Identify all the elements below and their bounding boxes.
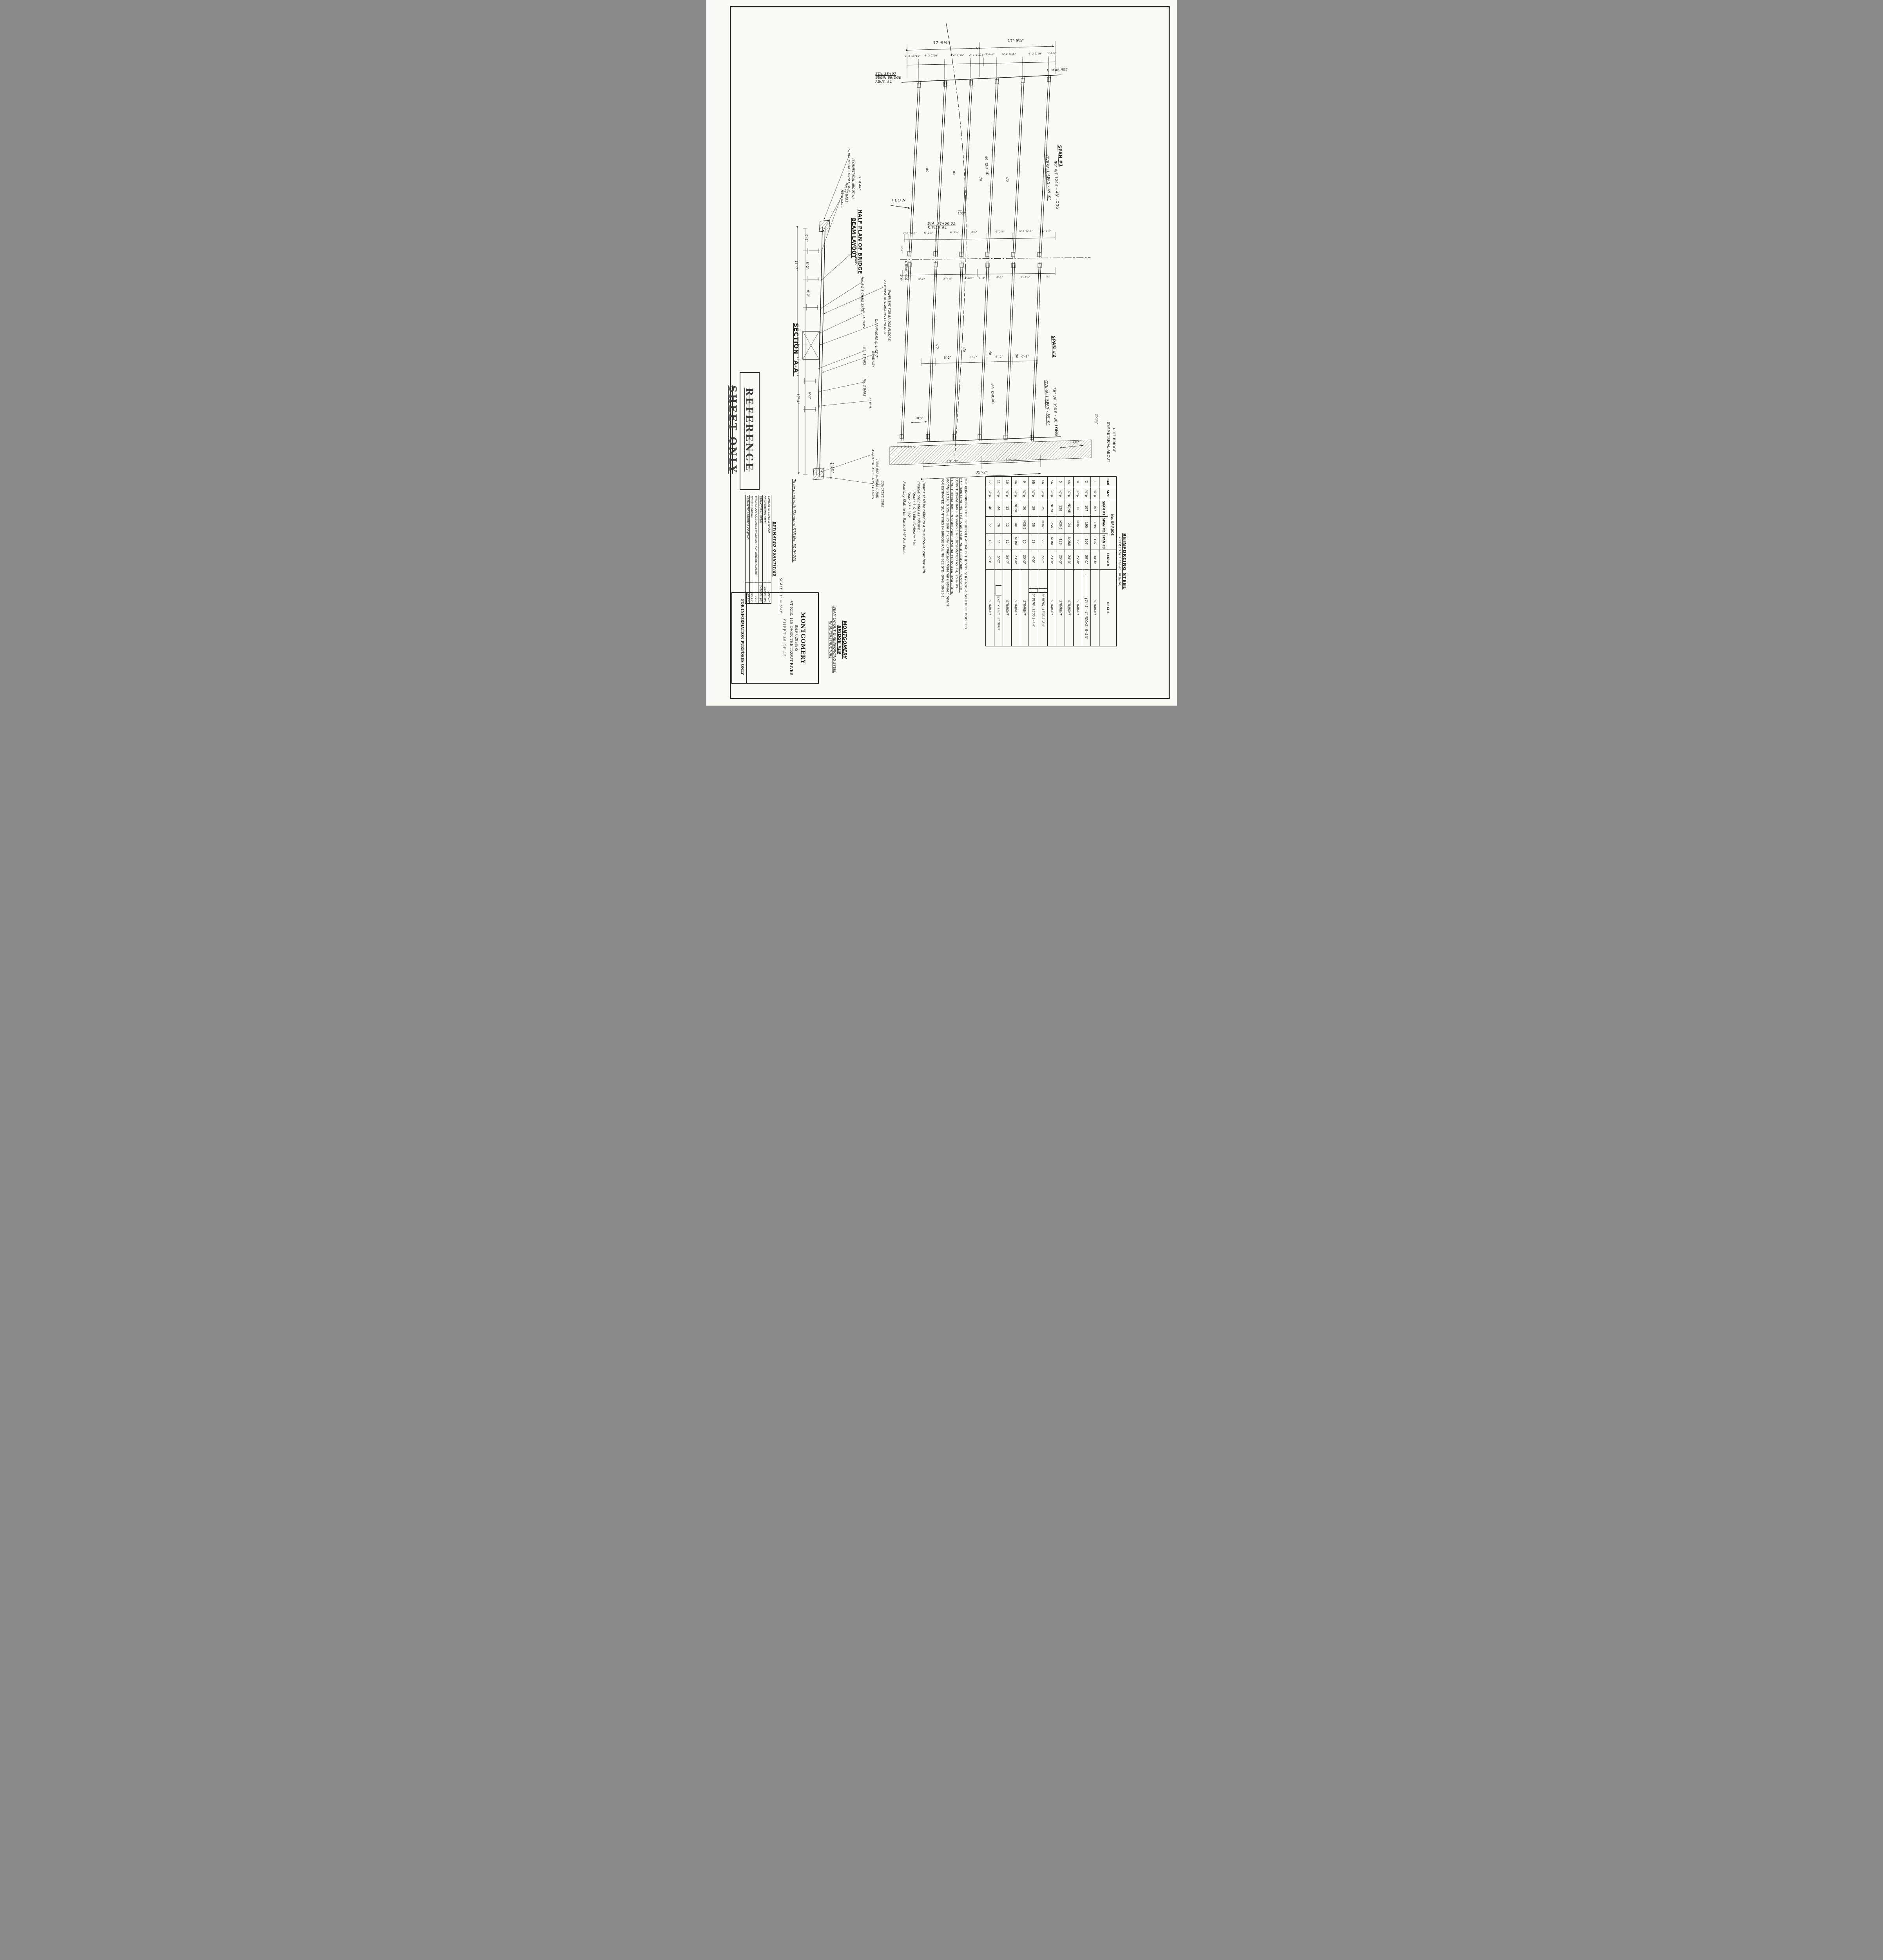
stirrup-bar-sketch xyxy=(996,585,1001,595)
dim-sub-5: 3'-6⅛" xyxy=(985,53,995,56)
dim-top-1: 17'-9⅜" xyxy=(933,41,950,45)
sta-begin-station: STA. 38+07 xyxy=(876,72,902,76)
rebar-header-row: BAR SIZE No. OF RODS LENGTH DETAIL xyxy=(1108,477,1116,646)
cell: 29 xyxy=(1029,500,1038,517)
table-row: STRUCTURAL STEEL247090 LBS. xyxy=(758,495,762,604)
cell: 24'-3" xyxy=(1065,550,1073,570)
ditto-s2-2: do xyxy=(962,347,966,352)
col-size: SIZE xyxy=(1099,487,1116,500)
cell: 58 xyxy=(1029,517,1038,534)
cell: NONE xyxy=(1047,500,1056,517)
dim-pier-below-8: ⅞" xyxy=(1046,275,1050,278)
title-block-main: MONTGOMERY BHF 0283(8)S VT RTE. 118 OVER… xyxy=(747,593,818,683)
detail-text: 34'-1" · 4" HOOKS · R=2½" xyxy=(1085,600,1088,640)
cell: 128 xyxy=(1056,500,1065,517)
dim-pier-below-2: 6'-2" xyxy=(918,278,925,281)
label-no11-bars: No. 11 BARS xyxy=(854,245,858,265)
label-no2-bars: No. 2 BARS xyxy=(863,379,866,396)
span2-title: SPAN #2 xyxy=(1051,336,1057,358)
dim-sub-8: 1'-9⅜" xyxy=(1047,52,1057,55)
table-row: BRIDGE RAILING379 L.F. xyxy=(749,495,754,604)
cell: NONE xyxy=(1011,500,1020,517)
cell: 195 xyxy=(1090,517,1099,534)
sta-begin-line2: BEGIN BRIDGE xyxy=(876,76,902,80)
detail-cell: 34'-1" · 4" HOOKS · R=2½" xyxy=(1082,570,1090,646)
cell: 256 xyxy=(1047,517,1056,534)
title-block-inner: MONTGOMERY BHF 0283(8)S VT RTE. 118 OVER… xyxy=(782,593,817,683)
dim-bottom-right-b: 6'-9¾" xyxy=(1068,441,1079,444)
table-row: 9A½"φNONE40NONE23'-8"STRAIGHT xyxy=(1011,477,1020,646)
label-symmetrical-cl: (SYMMETRICAL ABOUT ℄) xyxy=(851,158,855,199)
label-3in-min: 3" MIN. xyxy=(868,397,872,409)
quantities-box: ESTIMATED QUANTITIES CONCRETE CLASS B (M… xyxy=(734,495,776,604)
dim-pier-small-b: 1'-0" xyxy=(900,274,903,281)
label-chair-bars: No. 4 & 5 CHAIR BARS xyxy=(860,277,864,312)
label-diaphragms: DIAPHRAGMS @ ℄ 42'-7" xyxy=(874,319,878,359)
detail-cell: STRAIGHT xyxy=(1047,570,1056,646)
title-sheet-no: SHEET 45 OF 45 xyxy=(782,593,786,683)
ditto-s1-4: do xyxy=(1005,177,1009,182)
detail-cell: STRAIGHT xyxy=(1011,570,1020,646)
detail-text: 8" BEND · LEGS 1'-7¼" xyxy=(1032,594,1035,628)
dim-pier-below-7: 1'-3⅝" xyxy=(1021,276,1030,279)
cell: 29 xyxy=(1029,533,1038,550)
rebar-table: BAR SIZE No. OF RODS LENGTH DETAIL SPAN … xyxy=(985,476,1117,646)
dim-bottom-10half: 10½" xyxy=(915,416,923,420)
cell: 10 xyxy=(1003,477,1011,487)
cell: 2 xyxy=(1082,477,1090,487)
table-row: 2⅝"φ10719510736'-1"34'-1" · 4" HOOKS · R… xyxy=(1082,477,1090,646)
cell: NONE xyxy=(1047,533,1056,550)
cell: 40 xyxy=(1011,517,1020,534)
dim-pier-small-a: 1'-0" xyxy=(900,246,903,253)
cell: 44 xyxy=(994,500,1003,517)
cell: ½"φ xyxy=(985,487,994,500)
detail-cell: STRAIGHT xyxy=(1090,570,1099,646)
cell: ½"φ xyxy=(1029,487,1038,500)
dim-sub-1: 2'-8 13/16" xyxy=(905,54,921,58)
camber-5: Roadway Slab to be Banked ½" Per Foot. xyxy=(902,481,906,633)
qty-item: ASPHALTIC ASBESTOS COATING xyxy=(745,495,749,583)
dim-span2-mid-1: 6'-2" xyxy=(944,356,951,359)
dim-top-2: 17'-9⅝" xyxy=(1008,39,1024,43)
cell: NONE xyxy=(1065,533,1073,550)
cell: 23'-8" xyxy=(1047,550,1056,570)
detail-text: 8" BEND · LEGS 2'-2½" xyxy=(1041,594,1045,628)
cell: 24 xyxy=(1065,517,1073,534)
section-dim-62-4: 6'-2" xyxy=(808,392,811,399)
dim-sub-6: 6'-2 7/16" xyxy=(1002,53,1016,56)
dim-pier-above-6: 6'-2 7/16" xyxy=(1019,230,1033,233)
table-row: CONCRETE CLASS B (MOD)198 C.Y. xyxy=(767,495,771,604)
dim-pier-below-6: 6'-2" xyxy=(996,276,1003,279)
dim-bottom-17b: 17'-7" xyxy=(1005,459,1017,463)
half-plan-title-1: HALF PLAN OF BRIDGE xyxy=(857,209,863,274)
cell: 12 xyxy=(1073,500,1082,517)
table-row: 4A¾"φNONE24NONE24'-3"STRAIGHT xyxy=(1065,477,1073,646)
title-block: FOR INFORMATION PURPOSES ONLY MONTGOMERY… xyxy=(731,592,819,684)
span1-chord: 49' CHORD xyxy=(984,156,989,176)
dim-span2-mid-4: 6'-2" xyxy=(1021,355,1029,358)
camber-4: Span 2 " " 3¾" xyxy=(907,481,911,633)
detail-cell: STRAIGHT xyxy=(1020,570,1029,646)
sta-pier-station: STA. 38+56.01 xyxy=(928,222,956,226)
cell: 5 xyxy=(1056,477,1065,487)
qty-item: BRIDGE RAILING xyxy=(749,495,754,583)
cell: 34'-7" xyxy=(1003,550,1011,570)
cell: ⅝"φ xyxy=(1082,487,1090,500)
cell: ½"φ xyxy=(1047,487,1056,500)
cell: ½"φ xyxy=(1038,487,1047,500)
col-bar: BAR xyxy=(1099,477,1116,487)
cell: 25'-3" xyxy=(1020,550,1029,570)
dim-pier-above-7: 1'-7⅞" xyxy=(1042,229,1052,232)
label-pavement-2: PAVEMENT FOR BRIDGE FLOORS xyxy=(887,290,891,341)
cell: 29 xyxy=(1038,533,1047,550)
detail-cell: STRAIGHT xyxy=(1065,570,1073,646)
section-dim-62-1: 6'-2" xyxy=(805,234,808,242)
hand-title-3: BEAM LAYOUT & REINFORCING STEEL xyxy=(832,596,836,684)
note-6: FOR ESTIMATED QUANTITIES IN BRIDGE RAILI… xyxy=(941,478,944,639)
hand-title-inner: MONTGOMERY BRIDGE #19 BEAM LAYOUT & REIN… xyxy=(828,596,847,684)
ditto-s2-1: do xyxy=(935,344,940,349)
section-dim-17-7: 17'-7" xyxy=(794,260,798,271)
hand-title-box: MONTGOMERY BRIDGE #19 BEAM LAYOUT & REIN… xyxy=(824,596,847,684)
cell: ⅝"φ xyxy=(1090,487,1099,500)
camber-notes: Beams shall be rolled to a true circular… xyxy=(896,481,925,633)
rebar-title: REINFORCING STEEL xyxy=(1122,476,1127,646)
dim-sub-4: 2'-7 11/16" xyxy=(969,53,985,56)
cell: 1 xyxy=(1090,477,1099,487)
cell: ½"φ xyxy=(1020,487,1029,500)
rebar-table-box: REINFORCING STEEL REFER TO STD. S1B No. … xyxy=(962,476,1127,646)
rebar-subtitle: REFER TO STD. S1B No. 30 (H-20) xyxy=(1118,476,1121,646)
ditto-s1-2: do xyxy=(952,171,956,176)
col-span2: SPAN #2 xyxy=(1099,517,1108,534)
dim-pier-below-5: 6'-2" xyxy=(979,276,985,279)
dim-bottom-right-a: 2'-1⅛" xyxy=(1095,414,1098,425)
cell: ¾"φ xyxy=(1065,487,1073,500)
dim-sub-2: 6'-2 7/16" xyxy=(925,54,938,57)
cell: 6A xyxy=(1038,477,1047,487)
detail-cell: STRAIGHT xyxy=(1003,570,1011,646)
table-row: 11½"φ4476445'-2"2'-2" × 1'-3" · 3" HOOK xyxy=(994,477,1003,646)
rebar-table-inner: REINFORCING STEEL REFER TO STD. S1B No. … xyxy=(985,476,1127,646)
title-town: MONTGOMERY xyxy=(800,593,806,683)
dim-pier-above-3: 6'-2⅞" xyxy=(950,231,960,234)
detail-cell: STRAIGHT xyxy=(985,570,994,646)
ditto-s2-3: do xyxy=(988,350,992,355)
section-dim-62-2: 6'-2" xyxy=(805,262,809,269)
table-row: 5A½"φNONE256NONE23'-8"STRAIGHT xyxy=(1047,477,1056,646)
table-row: 10⅜"φ12121234'-7"STRAIGHT xyxy=(1003,477,1011,646)
cell: 107 xyxy=(1090,533,1099,550)
cell: 12 xyxy=(1003,533,1011,550)
label-no5a-bars: No. 5A BARS xyxy=(862,308,865,328)
cell: 9A xyxy=(1011,477,1020,487)
quantities-title: ESTIMATED QUANTITIES xyxy=(772,495,776,604)
ditto-s1-3: do xyxy=(978,176,983,181)
span1-title: SPAN #1 xyxy=(1057,145,1063,167)
detail-cell: 8" BEND · LEGS 2'-2½" xyxy=(1038,570,1047,646)
cell: 44 xyxy=(994,533,1003,550)
label-no12-bars: No. 12 BARS xyxy=(845,183,848,202)
cell: NONE xyxy=(1065,500,1073,517)
cell: 11 xyxy=(994,477,1003,487)
cell: 40 xyxy=(985,500,994,517)
cell: 29 xyxy=(1038,500,1047,517)
table-row: 12½"φ4072402'-3"STRAIGHT xyxy=(985,477,994,646)
usage-note: To be used with Standard S1B No. 30 (H-2… xyxy=(792,479,796,572)
span2-chord: 89' CHORD xyxy=(990,384,995,404)
reference-stamp-text: REFERENCE SHEET ONLY xyxy=(724,373,757,486)
cell: 40 xyxy=(985,533,994,550)
sta-begin-block: STA. 38+07 BEGIN BRIDGE ABUT. #1 xyxy=(876,72,902,84)
hand-title-4: IN SUPERSTRUCTURE xyxy=(828,596,832,684)
cell: 12 xyxy=(1073,533,1082,550)
table-row: 5½"φ128NONE12825'-3"STRAIGHT xyxy=(1056,477,1065,646)
dim-pier-above-4: 2⅞" xyxy=(971,230,977,234)
col-detail: DETAIL xyxy=(1099,570,1116,646)
drawing-sheet: REFERENCE SHEET ONLY 17'-9⅜" 17'-9⅝" 2'-… xyxy=(706,0,1177,706)
cell: 12 xyxy=(1003,500,1011,517)
table-row: 9½"φ20NONE2025'-3"STRAIGHT xyxy=(1020,477,1029,646)
dim-pier-above-5: 6'-2⅞" xyxy=(996,230,1005,233)
ditto-s2-4: do xyxy=(1014,354,1019,358)
detail-text: 2'-2" × 1'-3" · 3" HOOK xyxy=(997,597,1000,631)
symmetry-label-2: ℄ OF BRIDGE xyxy=(1112,428,1116,452)
cell: 4'-5" xyxy=(1029,550,1038,570)
hand-title-2: BRIDGE #19 xyxy=(837,596,842,684)
hairpin-bar-sketch xyxy=(1038,588,1047,593)
skew-angle-label: 102° xyxy=(958,212,965,215)
dim-pier-above-2: 6'-2⅞" xyxy=(924,231,934,234)
cell: 9 xyxy=(1020,477,1029,487)
dim-bottom-1-6: 1'-6 7/16" xyxy=(901,445,916,449)
cell: NONE xyxy=(1073,517,1082,534)
hooked-bar-sketch xyxy=(1085,576,1087,599)
hairpin-bar-sketch xyxy=(1029,588,1038,593)
sta-pier-line2: ℄ PIER #1 xyxy=(928,226,956,230)
sta-begin-line3: ABUT. #1 xyxy=(876,80,902,84)
col-rods: No. OF RODS xyxy=(1108,500,1116,550)
ditto-s1-1: do xyxy=(925,168,929,172)
detail-cell: 2'-2" × 1'-3" · 3" HOOK xyxy=(994,570,1003,646)
cell: 72 xyxy=(985,517,994,534)
label-item407-curb: ITEM 407 (UNDER CURB) xyxy=(875,459,879,499)
cell: 36'-1" xyxy=(1082,550,1090,570)
cell: 20 xyxy=(1020,500,1029,517)
table-row: 6A½"φ29NONE295'-7"8" BEND · LEGS 2'-2½" xyxy=(1038,477,1047,646)
camber-3: Spans 1 & 3 Mid. Ordinate 1⅛" xyxy=(912,481,916,633)
title-route: VT RTE. 118 OVER THE TROUT RIVER xyxy=(789,593,793,683)
dim-pier-above-1: 2'-6 7/16" xyxy=(903,232,917,235)
cell: 195 xyxy=(1082,517,1090,534)
cell: 34'-6" xyxy=(1090,550,1099,570)
cell: 20 xyxy=(1020,533,1029,550)
cell: 76 xyxy=(994,517,1003,534)
title-project: BHF 0283(8)S xyxy=(794,593,798,683)
col-length: LENGTH xyxy=(1099,550,1116,570)
qty-item: BITUMINOUS CONCRETE PAVEMENT FOR BRIDGE … xyxy=(754,495,758,583)
cell: 107 xyxy=(1082,533,1090,550)
cell: 107 xyxy=(1082,500,1090,517)
note-5: Modify S1B30 (H20)-1 to use 1" Cork Expa… xyxy=(945,478,949,639)
dim-sub-7: 6'-2 7/16" xyxy=(1029,52,1042,55)
general-notes: THE REINFORCING STEEL SCHEDULE ABOVE IS … xyxy=(930,478,967,639)
dim-pier-below-3: 2'-4⅛" xyxy=(943,277,953,280)
camber-notes-inner: Beams shall be rolled to a true circular… xyxy=(901,481,925,633)
label-no9-bars: No. 9 BARS xyxy=(840,190,844,207)
cell: 12 xyxy=(985,477,994,487)
dim-pier-below-4: 4'-0½" xyxy=(965,277,974,280)
flow-label: FLOW xyxy=(892,198,906,203)
cell: NONE xyxy=(1020,517,1029,534)
cell: 5'-7" xyxy=(1038,550,1047,570)
camber-1: Beams shall be rolled to a true circular… xyxy=(922,481,925,633)
table-row: BITUMINOUS CONCRETE PAVEMENT FOR BRIDGE … xyxy=(754,495,758,604)
sta-pier-block: STA. 38+56.01 ℄ PIER #1 xyxy=(928,222,956,230)
label-no1-bars: No. 1 BARS xyxy=(863,347,866,365)
label-item407: ITEM 407 xyxy=(858,176,862,190)
table-row: 4¾"φ12NONE1225'-8"STRAIGHT xyxy=(1073,477,1082,646)
qty-item: STRUCTURAL STEEL xyxy=(758,495,762,583)
hand-title-1: MONTGOMERY xyxy=(842,596,847,684)
cell: 2'-3" xyxy=(985,550,994,570)
detail-cell: STRAIGHT xyxy=(1056,570,1065,646)
section-title: SECTION "A-A" xyxy=(793,323,800,376)
cell: 4A xyxy=(1065,477,1073,487)
cell: 128 xyxy=(1056,533,1065,550)
quantities-inner: ESTIMATED QUANTITIES CONCRETE CLASS B (M… xyxy=(745,495,776,604)
camber-2: middle ordinates as follows : xyxy=(916,481,920,633)
cell: ½"φ xyxy=(994,487,1003,500)
qty-item: CONCRETE CLASS B (MOD) xyxy=(767,495,771,583)
label-pavement-1: 2-COURSE BITUMINOUS CONCRETE xyxy=(883,280,887,335)
symmetry-label-1: SYMMETRICAL ABOUT xyxy=(1106,422,1110,463)
section-dim-17-4: 17'-4" xyxy=(796,394,800,404)
label-asbestos-coating: ASPHALTIC ASBESTOS COATING xyxy=(871,449,874,499)
dim-span2-mid-2: 6'-2" xyxy=(970,356,977,359)
table-row: ASPHALTIC ASBESTOS COATING67 S.Y. xyxy=(745,495,749,604)
col-span3: SPAN #3 xyxy=(1099,533,1108,550)
info-note-cell: FOR INFORMATION PURPOSES ONLY xyxy=(732,593,747,683)
cell: NONE xyxy=(1056,517,1065,534)
cell: ⅜"φ xyxy=(1003,487,1011,500)
info-note: FOR INFORMATION PURPOSES ONLY xyxy=(740,593,744,681)
table-row: 6B½"φ2958294'-5"8" BEND · LEGS 1'-7¼" xyxy=(1029,477,1038,646)
reference-stamp: REFERENCE SHEET ONLY xyxy=(740,372,760,490)
cell: ½"φ xyxy=(1011,487,1020,500)
bearings-label-pier: ℄ BEARINGS xyxy=(904,261,908,280)
usage-note-box: To be used with Standard S1B No. 30 (H-2… xyxy=(786,479,796,572)
qty-item: REINFORCING STEEL xyxy=(762,495,767,583)
detail-cell: 8" BEND · LEGS 1'-7¼" xyxy=(1029,570,1038,646)
cell: 6B xyxy=(1029,477,1038,487)
cell: 5'-2" xyxy=(994,550,1003,570)
section-dim-62-3: 6'-2" xyxy=(806,290,810,298)
cell: 25'-3" xyxy=(1056,550,1065,570)
note-4: LONGITUDINAL BARS IN SPAN 2 ARE DESIGNAT… xyxy=(950,478,954,639)
section-dim-2-9: 2'-9¾" xyxy=(831,463,834,473)
table-row: 1⅝"φ10719510734'-6"STRAIGHT xyxy=(1090,477,1099,646)
dim-bottom-17a: 17'-7" xyxy=(947,460,958,464)
table-row: REINFORCING STEEL44240 LBS. xyxy=(762,495,767,604)
dim-bottom-total: 35'-2" xyxy=(976,470,988,475)
dim-sub-3: 6'-2 7/16" xyxy=(951,54,964,57)
col-span1: SPAN #1 xyxy=(1099,500,1108,517)
cell: 5A xyxy=(1047,477,1056,487)
dim-span2-mid-3: 6'-2" xyxy=(996,355,1003,359)
cell: 12 xyxy=(1003,517,1011,534)
cell: 4 xyxy=(1073,477,1082,487)
cell: NONE xyxy=(1011,533,1020,550)
note-3: LONGITUDINAL BARS IN SPANS 1 & 3 DESIGNA… xyxy=(955,478,958,639)
cell: ½"φ xyxy=(1056,487,1065,500)
cell: 23'-8" xyxy=(1011,550,1020,570)
cell: 107 xyxy=(1090,500,1099,517)
cell: NONE xyxy=(1038,517,1047,534)
detail-cell: STRAIGHT xyxy=(1073,570,1082,646)
cell: 25'-8" xyxy=(1073,550,1082,570)
cell: ¾"φ xyxy=(1073,487,1082,500)
label-concrete-curb: CONCRETE CURB xyxy=(881,481,884,508)
quantities-table: CONCRETE CLASS B (MOD)198 C.Y. REINFORCI… xyxy=(745,495,771,604)
